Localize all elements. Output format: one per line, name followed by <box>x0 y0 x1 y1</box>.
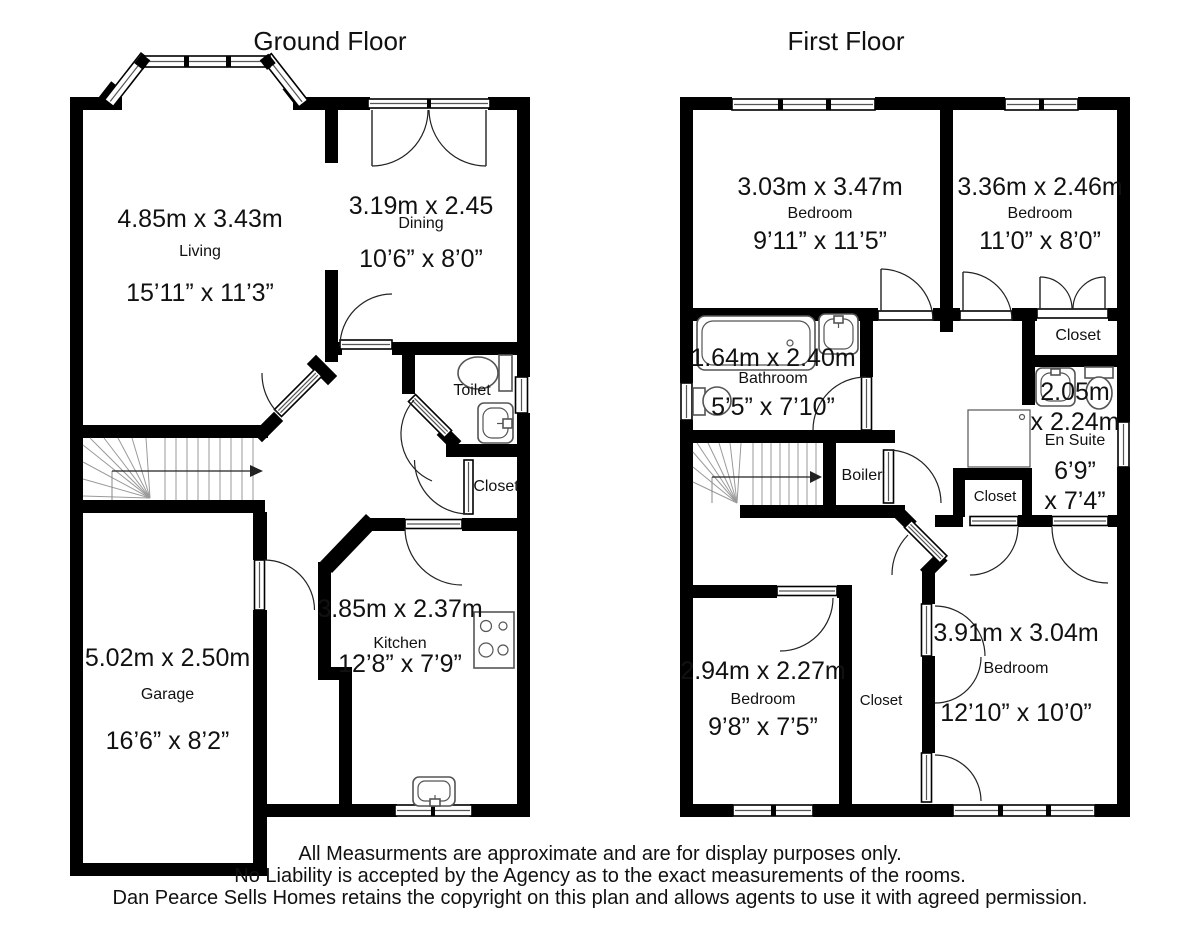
bedroom4-name: Bedroom <box>906 661 1126 678</box>
ensuite-name: En Suite <box>1015 433 1135 450</box>
dining-imperial: 10’6” x 8’0” <box>310 246 532 272</box>
living-imperial: 15’11” x 11’3” <box>90 280 310 306</box>
bedroom3-name: Bedroom <box>653 692 873 709</box>
staircase-icon <box>693 443 822 505</box>
first-floor-title: First Floor <box>696 28 996 55</box>
bedroom2-name: Bedroom <box>930 206 1150 223</box>
garage-imperial: 16’6” x 8’2” <box>60 728 275 754</box>
kitchen-metric: 3.85m x 2.37m <box>290 596 510 622</box>
living-name: Living <box>90 244 310 261</box>
closet-label: Closet <box>452 479 540 496</box>
bathroom-metric: 1.64m x 2.40m <box>663 345 883 371</box>
closet-label: Closet <box>1036 328 1120 345</box>
living-metric: 4.85m x 3.43m <box>90 206 310 232</box>
bedroom1-name: Bedroom <box>706 206 934 223</box>
floorplan-page: Ground Floor First Floor 4.85m x 3.43m L… <box>0 0 1200 938</box>
bedroom1-imperial: 9’11” x 11’5” <box>706 228 934 254</box>
boiler-label: Boiler <box>820 468 904 485</box>
sink-icon <box>478 403 513 443</box>
bedroom1-metric: 3.03m x 3.47m <box>706 174 934 200</box>
ensuite-imperial-line1: 6’9” <box>1015 458 1135 484</box>
kitchen-imperial: 12’8” x 7’9” <box>290 651 510 677</box>
ground-floor-doors <box>255 110 487 610</box>
bedroom4-metric: 3.91m x 3.04m <box>906 620 1126 646</box>
garage-name: Garage <box>60 687 275 704</box>
toilet-room-label: Toilet <box>430 383 514 400</box>
bedroom3-imperial: 9’8” x 7’5” <box>653 714 873 740</box>
closet-label: Closet <box>953 489 1037 505</box>
dining-name: Dining <box>310 216 532 233</box>
bathroom-name: Bathroom <box>663 371 883 388</box>
bedroom2-imperial: 11’0” x 8’0” <box>930 228 1150 254</box>
bedroom2-metric: 3.36m x 2.46m <box>930 174 1150 200</box>
bedroom3-metric: 2.94m x 2.27m <box>653 658 873 684</box>
disclaimer-line-1: All Measurments are approximate and are … <box>0 844 1200 865</box>
garage-metric: 5.02m x 2.50m <box>60 645 275 671</box>
copyright-line: Dan Pearce Sells Homes retains the copyr… <box>0 888 1200 909</box>
ground-floor-title: Ground Floor <box>180 28 480 55</box>
staircase-icon <box>83 438 263 500</box>
ensuite-metric-line1: 2.05m <box>1015 379 1135 405</box>
bathroom-imperial: 5’5” x 7’10” <box>663 394 883 420</box>
bedroom4-imperial: 12’10” x 10’0” <box>906 700 1126 726</box>
disclaimer-line-2: No Liability is accepted by the Agency a… <box>0 866 1200 887</box>
kitchen-sink-icon <box>413 777 455 806</box>
bay-window-icon <box>99 53 308 107</box>
